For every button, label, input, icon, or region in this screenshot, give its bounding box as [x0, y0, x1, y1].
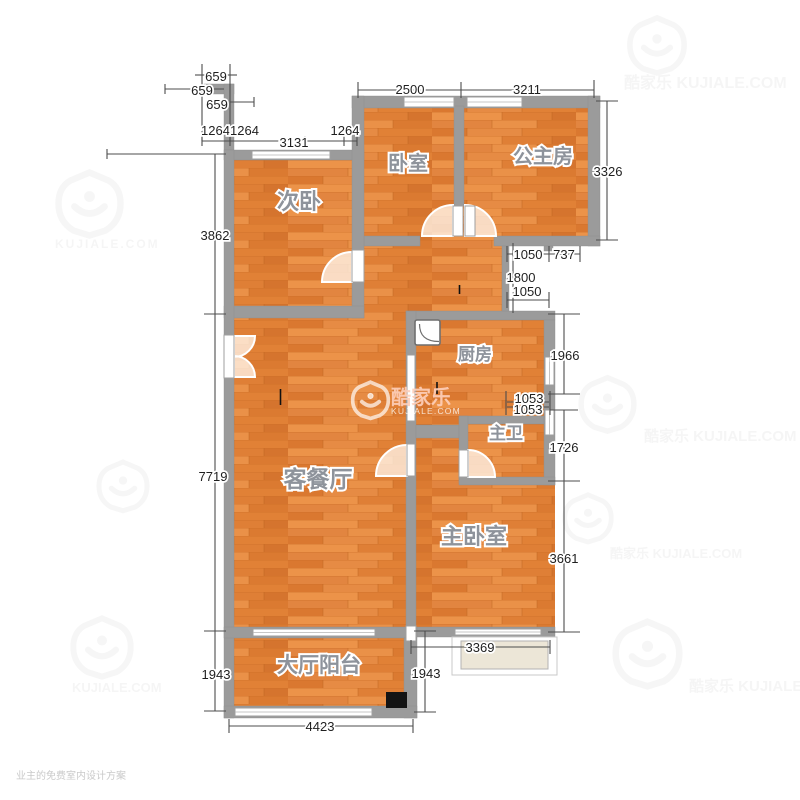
svg-text:1264: 1264	[331, 123, 360, 138]
svg-text:主卧室: 主卧室	[441, 524, 507, 549]
svg-text:业主的免费室内设计方案: 业主的免费室内设计方案	[16, 769, 126, 782]
svg-text:客餐厅: 客餐厅	[284, 466, 353, 492]
svg-text:3369: 3369	[466, 640, 495, 655]
svg-text:次卧: 次卧	[277, 189, 321, 214]
svg-text:酷家乐 KUJIALE.COM: 酷家乐 KUJIALE.COM	[610, 546, 742, 561]
svg-text:659: 659	[191, 83, 213, 98]
svg-text:1966: 1966	[551, 348, 580, 363]
svg-text:659: 659	[205, 69, 227, 84]
svg-text:酷家乐 KUJIALE.COM: 酷家乐 KUJIALE.COM	[689, 677, 800, 695]
svg-text:3326: 3326	[594, 164, 623, 179]
svg-text:737: 737	[553, 247, 575, 262]
svg-text:主卫: 主卫	[489, 423, 523, 443]
svg-text:7719: 7719	[199, 469, 228, 484]
svg-text:1053: 1053	[514, 402, 543, 417]
svg-text:公主房: 公主房	[513, 144, 573, 168]
svg-text:KUJIALE.COM: KUJIALE.COM	[391, 406, 461, 416]
svg-text:1800: 1800	[507, 270, 536, 285]
svg-text:KUJIALE.COM: KUJIALE.COM	[72, 680, 162, 695]
svg-text:1050: 1050	[513, 284, 542, 299]
svg-text:酷家乐 KUJIALE.COM: 酷家乐 KUJIALE.COM	[624, 73, 787, 92]
svg-text:KUJIALE.COM: KUJIALE.COM	[55, 237, 160, 251]
svg-text:1050: 1050	[514, 247, 543, 262]
svg-text:4423: 4423	[306, 719, 335, 734]
svg-text:卧室: 卧室	[388, 151, 428, 175]
svg-text:酷家乐 KUJIALE.COM: 酷家乐 KUJIALE.COM	[644, 427, 797, 445]
svg-text:1264: 1264	[201, 123, 230, 138]
svg-text:2500: 2500	[396, 82, 425, 97]
svg-text:659: 659	[206, 97, 228, 112]
svg-text:1943: 1943	[412, 666, 441, 681]
svg-text:大厅阳台: 大厅阳台	[277, 653, 361, 677]
svg-text:3211: 3211	[513, 82, 541, 97]
svg-text:1943: 1943	[202, 667, 231, 682]
svg-text:3661: 3661	[550, 551, 579, 566]
svg-text:1264: 1264	[230, 123, 259, 138]
svg-text:3131: 3131	[280, 135, 309, 150]
svg-text:厨房: 厨房	[458, 344, 492, 364]
svg-text:3862: 3862	[201, 228, 230, 243]
svg-text:1726: 1726	[550, 440, 579, 455]
